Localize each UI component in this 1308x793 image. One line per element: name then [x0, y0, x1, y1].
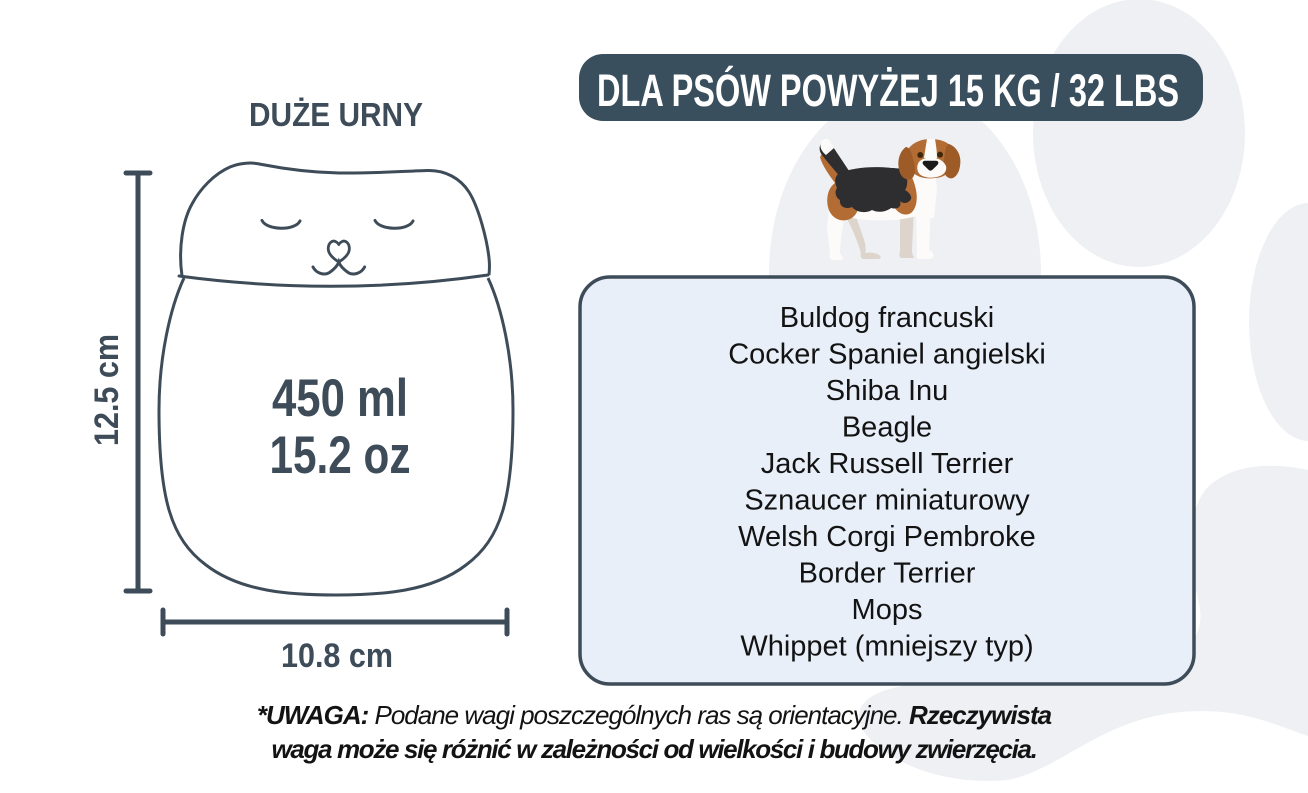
- svg-text:12.5 cm: 12.5 cm: [88, 334, 126, 446]
- svg-text:Buldog francuski: Buldog francuski: [780, 302, 994, 334]
- svg-text:Jack Russell Terrier: Jack Russell Terrier: [761, 448, 1014, 480]
- svg-text:*UWAGA: Podane wagi poszczegól: *UWAGA: Podane wagi poszczególnych ras s…: [257, 700, 1052, 730]
- svg-text:Shiba Inu: Shiba Inu: [826, 375, 949, 407]
- svg-text:Cocker Spaniel angielski: Cocker Spaniel angielski: [728, 339, 1046, 371]
- svg-text:Welsh Corgi Pembroke: Welsh Corgi Pembroke: [738, 521, 1036, 553]
- svg-text:Whippet (mniejszy typ): Whippet (mniejszy typ): [740, 631, 1033, 663]
- svg-text:Mops: Mops: [852, 594, 923, 626]
- svg-text:DUŻE URNY: DUŻE URNY: [249, 96, 423, 133]
- svg-text:waga może się różnić w zależno: waga może się różnić w zależności od wie…: [272, 734, 1037, 764]
- svg-text:DLA PSÓW POWYŻEJ 15 KG / 32 LB: DLA PSÓW POWYŻEJ 15 KG / 32 LBS: [597, 65, 1179, 116]
- svg-text:Border Terrier: Border Terrier: [799, 558, 976, 590]
- svg-text:450 ml: 450 ml: [272, 369, 408, 428]
- svg-text:10.8 cm: 10.8 cm: [281, 637, 393, 675]
- svg-text:Sznaucer miniaturowy: Sznaucer miniaturowy: [744, 485, 1030, 517]
- svg-text:Beagle: Beagle: [842, 412, 932, 444]
- svg-text:15.2 oz: 15.2 oz: [270, 426, 411, 485]
